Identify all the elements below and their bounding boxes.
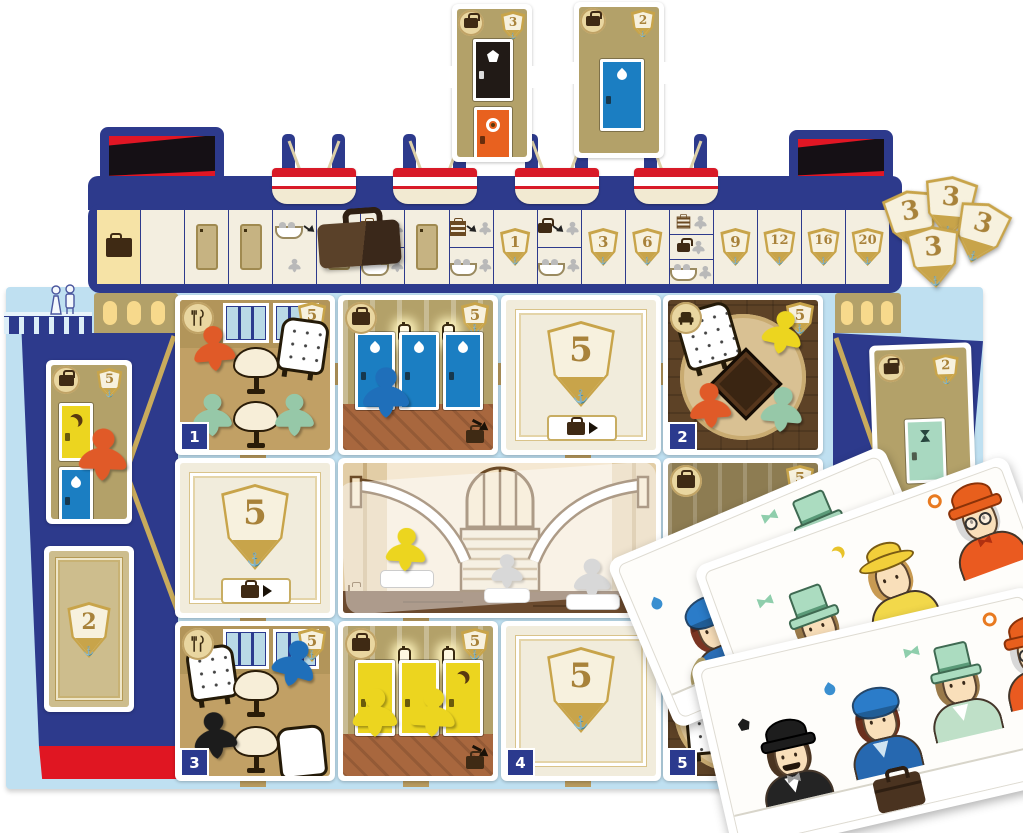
meeple-gray-icon — [691, 240, 706, 255]
board-game-scene: 5 1 5 5 5 — [0, 0, 1023, 833]
deckhouse-right — [835, 293, 901, 333]
suitcase-icon — [883, 362, 898, 374]
cabin-door-green — [905, 418, 947, 483]
lifeboat-icon — [670, 268, 697, 281]
porthole-window — [103, 301, 117, 325]
cabin-door-blue — [600, 59, 644, 131]
tile-tab — [662, 62, 670, 84]
anchor-icon — [631, 257, 663, 265]
cabin-door-blue — [443, 332, 483, 410]
track-square[interactable] — [185, 210, 228, 284]
luggage-icon — [52, 366, 80, 394]
ship-hull-red-left — [20, 746, 178, 779]
suitcase-icon — [352, 312, 370, 325]
suitcase-icon — [106, 238, 132, 257]
meeple-yellow[interactable] — [381, 519, 432, 579]
track-square-shield[interactable]: 3 — [582, 210, 625, 284]
cabin-door-black — [473, 39, 513, 101]
exit-plaque — [547, 415, 617, 441]
suitcase-icon — [352, 638, 370, 651]
tile-tab — [530, 66, 538, 88]
meeple-blue[interactable] — [358, 359, 414, 425]
anchor-icon — [499, 257, 531, 265]
anchor-icon — [587, 257, 619, 265]
tile-number-badge: 3 — [180, 748, 209, 777]
lifeboat — [272, 168, 356, 204]
door-tile-icon — [416, 224, 438, 270]
porthole-window — [861, 301, 873, 325]
track-square[interactable] — [273, 210, 316, 284]
luggage-stack-icon — [677, 216, 691, 228]
room-tile-cabins-blue[interactable]: 5 — [338, 295, 498, 455]
track-square[interactable] — [670, 210, 713, 284]
porthole-window — [151, 301, 165, 325]
exit-suitcase-icon — [464, 745, 490, 771]
tile-number-badge: 5 — [668, 748, 697, 777]
tile-number-badge: 2 — [668, 422, 697, 451]
suitcase-icon — [677, 475, 695, 488]
arrow-icon — [304, 223, 315, 234]
meeple-gray-icon — [287, 258, 302, 273]
passenger-green-suit-man — [915, 638, 1004, 743]
lifeboat — [393, 168, 477, 204]
track-square-shield[interactable]: 9 — [714, 210, 757, 284]
meeple-gray-icon — [693, 215, 708, 230]
track-square-shield[interactable]: 16 — [802, 210, 845, 284]
exit-plaque — [221, 578, 291, 604]
tile-number-badge: 4 — [506, 748, 535, 777]
suitcase-icon — [567, 422, 585, 435]
meeple-gray-icon — [478, 258, 493, 273]
suitcase-icon — [677, 243, 690, 252]
meeple-green[interactable] — [754, 377, 809, 441]
fork-knife-icon — [190, 635, 206, 653]
track-square[interactable] — [538, 210, 581, 284]
suitcase-game-piece[interactable] — [316, 207, 402, 269]
track-square[interactable] — [141, 210, 184, 284]
meeple-green[interactable] — [271, 387, 318, 442]
passenger-blue-hat-lady — [835, 675, 924, 780]
meeple-gray-icon — [478, 221, 492, 236]
lifeboat-icon — [275, 226, 303, 239]
cabin-door-orange — [474, 107, 512, 157]
luggage-icon — [670, 465, 702, 497]
lifeboat-icon — [450, 263, 477, 276]
pentagon-icon — [487, 50, 499, 62]
suitcase-icon — [872, 770, 926, 814]
anchor-icon — [719, 257, 751, 265]
passenger-orange-hat-man — [931, 471, 1023, 581]
room-tile-dining-3[interactable]: 5 3 — [175, 621, 335, 781]
dining-icon — [182, 628, 214, 660]
ring-icon — [486, 118, 500, 132]
lifeboat — [634, 168, 718, 204]
suitcase-icon — [586, 16, 600, 26]
meeple-orange[interactable] — [187, 317, 242, 379]
anchor-icon — [851, 257, 885, 265]
dining-chair — [275, 316, 330, 376]
luggage-icon — [458, 10, 484, 36]
hourglass-icon — [920, 430, 930, 442]
meeple-gray-icon — [698, 265, 713, 280]
porthole-window — [127, 301, 141, 325]
score-tile-5a[interactable]: 5 — [501, 295, 661, 455]
drop-icon — [368, 341, 382, 355]
room-tile-lounge-2[interactable]: 5 2 — [663, 295, 823, 455]
track-square-shield[interactable]: 6 — [626, 210, 669, 284]
track-square[interactable] — [229, 210, 272, 284]
corridor-tile-top-a[interactable]: 3 — [452, 4, 532, 162]
corridor-tile-top-b[interactable]: 2 — [574, 2, 664, 158]
meeple-orange[interactable] — [73, 419, 133, 489]
score-tile-5c[interactable]: 5 4 — [501, 621, 661, 781]
score-tile-5b[interactable]: 5 — [175, 458, 335, 618]
moon-icon — [830, 545, 847, 562]
room-tile-dining-1[interactable]: 5 1 — [175, 295, 335, 455]
porthole-window — [881, 301, 893, 325]
score-tile-left-2[interactable]: 2 — [44, 546, 134, 712]
tile-tab — [568, 62, 576, 84]
luggage-icon — [345, 302, 377, 334]
exit-suitcase-icon — [464, 419, 490, 445]
drop-icon — [615, 68, 629, 82]
meeple-yellow[interactable] — [404, 678, 461, 747]
luggage-icon — [345, 628, 377, 660]
tile-number-badge: 1 — [180, 422, 209, 451]
track-square[interactable] — [405, 210, 448, 284]
suitcase-icon — [538, 223, 552, 233]
arrow-icon — [553, 223, 564, 234]
lounge-icon — [670, 302, 702, 334]
meeple-gray-icon — [566, 258, 581, 273]
lifeboat-icon — [538, 263, 565, 276]
suitcase-icon — [59, 375, 74, 386]
track-square-shield[interactable]: 1 — [494, 210, 537, 284]
door-tile-icon — [196, 224, 218, 270]
score-track: 1 3 6 9 12 16 20 — [97, 210, 889, 284]
lifeboat — [515, 168, 599, 204]
suitcase-icon — [464, 18, 478, 28]
meeple-gray-icon — [565, 221, 580, 236]
drop-icon — [456, 341, 470, 355]
track-square[interactable] — [450, 210, 493, 284]
drop-icon — [412, 341, 426, 355]
track-square-shield[interactable]: 12 — [758, 210, 801, 284]
deckhouse-left — [94, 293, 178, 333]
couple-figures — [44, 284, 84, 316]
anchor-icon — [907, 274, 964, 289]
dining-chair — [275, 724, 328, 776]
anchor-icon — [762, 257, 796, 265]
suitcase-icon — [241, 585, 259, 598]
track-square-start[interactable] — [97, 210, 140, 284]
tile-tab — [446, 66, 454, 88]
luggage-icon — [580, 8, 606, 34]
drop-icon — [650, 597, 664, 611]
porthole-window — [841, 301, 853, 325]
door-tile-icon — [240, 224, 262, 270]
luggage-stack-icon — [450, 221, 466, 236]
anchor-icon — [807, 257, 841, 265]
victory-token-3[interactable]: 3 — [904, 224, 964, 290]
meeple-yellow[interactable] — [348, 679, 402, 745]
arrow-icon — [467, 223, 477, 234]
armchair-icon — [677, 310, 695, 326]
room-tile-cabins-yellow[interactable]: 5 — [338, 621, 498, 781]
